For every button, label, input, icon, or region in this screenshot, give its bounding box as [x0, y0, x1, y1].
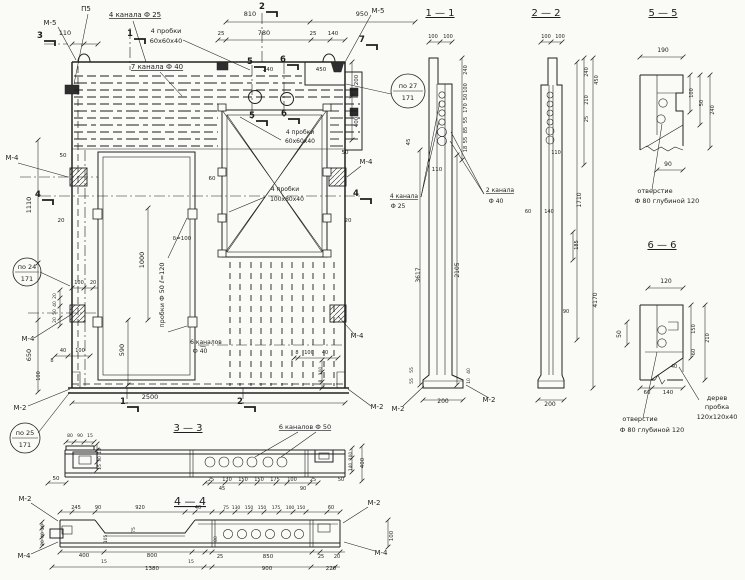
dim: 100: [389, 530, 395, 541]
dim: 100: [443, 34, 453, 40]
dim: 150: [238, 477, 248, 483]
dim: 15: [97, 464, 103, 470]
dim: 650: [25, 349, 33, 361]
svg-text:2: 2: [237, 397, 243, 407]
note-m2-s1-right: М-2: [482, 396, 495, 404]
dim: 105: [103, 535, 109, 544]
note-derev-probka-b: пробка: [705, 403, 729, 411]
channel-f50: [247, 457, 257, 467]
svg-text:171: 171: [19, 441, 31, 449]
dim: 3617: [415, 267, 422, 282]
note-4-probki-100b: 100х80х40: [270, 196, 304, 203]
dim: 210: [584, 95, 590, 105]
svg-text:4: 4: [35, 190, 41, 200]
note-2-kanala-f40-s1b: Ф 40: [489, 198, 504, 205]
svg-text:1: 1: [127, 29, 133, 39]
svg-text:4: 4: [353, 189, 359, 199]
dim: 400: [79, 553, 90, 559]
channel-f50: [281, 529, 290, 538]
dim: 90: [300, 486, 306, 492]
dim: 20: [334, 554, 340, 560]
note-4-probki-60-2: 4 пробки: [286, 129, 314, 136]
dim: 100: [428, 34, 438, 40]
dim: 20: [52, 293, 58, 299]
note-4-kanala-f25-s1: 4 канала: [390, 193, 418, 200]
note-derev-probka-c: 120х120х40: [697, 413, 738, 421]
dim: 100: [36, 371, 42, 381]
dim: 8: [50, 358, 53, 364]
svg-text:2: 2: [259, 2, 265, 12]
dim: 25: [310, 477, 316, 483]
dim: 25: [310, 31, 317, 37]
note-otverstie-6-6b: Ф 80 глубиной 120: [620, 426, 685, 434]
dim: 100: [555, 34, 565, 40]
dim: 40: [466, 368, 472, 374]
dim: 590: [118, 344, 126, 356]
dim: 100: [286, 505, 295, 511]
dim: 100: [304, 350, 314, 356]
section-cut-marker-4: 4: [353, 189, 371, 204]
note-m2-s4-tr: М-2: [367, 499, 380, 507]
note-4-kanala-f25-s1b: Ф 25: [391, 203, 406, 210]
engineering-drawing: М-5П54 канала Ф 2511081095025780251404 п…: [0, 0, 745, 580]
note-m2-bottom-right: М-2: [370, 403, 383, 411]
dim: 25: [208, 477, 214, 483]
dim: 140: [348, 463, 354, 472]
note-m4-s4-bl: М-4: [17, 552, 31, 560]
note-7-kanala-f40: 7 канала Ф 40: [131, 63, 183, 71]
dim: 50: [616, 330, 623, 338]
dim: 90: [95, 505, 101, 511]
dim: 200: [544, 401, 556, 408]
dim: 60: [691, 349, 697, 355]
dim: 140: [663, 390, 674, 396]
hole-f80: [658, 326, 666, 334]
detail-6-6-view: [640, 305, 683, 384]
dim: 75: [131, 527, 137, 533]
channel-f50: [219, 457, 229, 467]
dim: 40: [671, 364, 677, 370]
dim: 30: [97, 456, 103, 462]
section-cut-marker-1: 1: [120, 397, 138, 412]
channel-f50: [277, 457, 287, 467]
window-opening: [218, 104, 331, 257]
dim: 50: [342, 150, 349, 156]
dim: 130: [232, 505, 241, 511]
note-2-kanala-f40-s1: 2 канала: [486, 187, 514, 194]
dim: 8: [318, 379, 324, 382]
section-cut-marker-7: 7: [359, 35, 377, 50]
dim: 90: [563, 309, 569, 315]
dim: 20: [58, 218, 65, 224]
dim: 100: [74, 280, 84, 286]
dim: 780: [258, 29, 270, 37]
dim: 150: [691, 324, 697, 334]
dim: 450: [594, 75, 600, 85]
dim: 90: [77, 433, 83, 439]
note-4-probki-60-2b: 60х60х40: [285, 138, 315, 145]
note-derev-probka: дерев: [707, 394, 728, 402]
channel-f50: [265, 529, 274, 538]
section-title-6-6: 6 — 6: [647, 240, 676, 251]
section-cut-marker-2: 2: [237, 397, 255, 412]
note-m2-s4-tl: М-2: [18, 495, 31, 503]
dim: 150: [258, 505, 267, 511]
note-probki-f50: пробки Ф 50 ℓ=120: [158, 262, 166, 327]
dim: 245: [71, 505, 81, 511]
svg-text:3: 3: [37, 31, 43, 41]
dim: 50: [463, 94, 469, 100]
svg-text:1: 1: [120, 397, 126, 407]
dim: 400: [360, 457, 366, 468]
dim: 60: [328, 505, 334, 511]
dim: 18: [463, 146, 469, 152]
section-title-5-5: 5 — 5: [648, 8, 677, 19]
embed-plate-m5-left: [217, 62, 228, 70]
embed-plate-m5-right: [331, 62, 344, 72]
dim: 240: [710, 105, 716, 115]
dim: 1000: [138, 252, 146, 269]
dim: 50: [53, 476, 60, 482]
note-m2-s1-left: М-2: [391, 405, 404, 413]
note-m4-left-1: М-4: [5, 154, 19, 162]
note-m4-right-2: М-4: [350, 332, 364, 340]
dim: 40: [40, 532, 46, 538]
note-delta-100: δ=100: [173, 236, 192, 242]
dim: 100: [463, 83, 469, 93]
dim: 25: [584, 116, 590, 122]
svg-text:5: 5: [247, 57, 253, 67]
hole-f80: [658, 339, 666, 347]
note-6-kanalov-f50: 6 каналов Ф 50: [279, 423, 331, 431]
dim: 20: [40, 540, 46, 546]
svg-text:по 27: по 27: [399, 82, 418, 90]
svg-text:6: 6: [281, 109, 287, 119]
dim: 20: [52, 317, 58, 323]
detail-5-5-view: [640, 75, 683, 151]
channel-f50: [205, 457, 215, 467]
dim: 850: [263, 554, 274, 560]
dim: 2500: [142, 393, 159, 401]
ref-balloon-top: по 27171: [391, 74, 425, 108]
dim: 55: [409, 378, 415, 384]
svg-text:171: 171: [21, 275, 33, 283]
dim: 170: [463, 103, 469, 113]
dim: 450: [316, 67, 327, 73]
section-3-3-view: [65, 446, 345, 477]
dim: 1380: [145, 566, 159, 572]
dim: 140: [544, 209, 554, 215]
dim: 55: [463, 137, 469, 143]
dim: 55: [409, 367, 415, 373]
embed-plate-m4-right-1: [329, 168, 346, 186]
dim: 920: [135, 505, 145, 511]
dim: 900: [262, 566, 273, 572]
dim: 25: [318, 554, 324, 560]
dim: 85: [463, 127, 469, 133]
dim: 50: [52, 309, 58, 315]
note-otverstie-6-6: отверстие: [622, 415, 657, 423]
note-otverstie-5-5: отверстие: [637, 187, 672, 195]
dim: 25: [218, 31, 225, 37]
hole-f80: [657, 115, 665, 123]
dim: 100: [75, 348, 85, 354]
dim: 110: [59, 29, 71, 37]
dim: 1710: [576, 192, 583, 207]
svg-text:5: 5: [249, 111, 255, 121]
ref-balloon-left: по 24171: [13, 258, 41, 286]
dim: 240: [584, 67, 590, 77]
dim: 800: [147, 553, 158, 559]
dim: 50: [338, 477, 344, 483]
section-title-2-2: 2 — 2: [531, 8, 560, 19]
dim: 100: [348, 452, 354, 461]
channel-f50: [294, 529, 303, 538]
dim: 60: [644, 390, 651, 396]
note-4-probki-60-1: 4 пробки: [151, 27, 182, 35]
note-p5: П5: [81, 5, 91, 13]
dim: 110: [432, 167, 443, 173]
section-title-3-3: 3 — 3: [173, 423, 202, 434]
svg-text:7: 7: [359, 35, 365, 45]
dim: 200: [437, 398, 449, 405]
dim: 80: [67, 433, 73, 439]
dim: 20: [40, 524, 46, 530]
dim: 1110: [25, 197, 33, 214]
dim: 190: [657, 47, 669, 54]
channel-hole: [281, 93, 294, 106]
dim: 240: [463, 65, 469, 75]
dim: 15: [188, 559, 194, 565]
dim: 60: [525, 209, 531, 215]
note-otverstie-5-5b: Ф 80 глубиной 120: [635, 197, 700, 205]
dim: 50: [60, 153, 67, 159]
note-6-kanalov-f40b: Ф 40: [193, 348, 208, 355]
dim: 40: [195, 505, 201, 511]
text-labels: М-5П54 канала Ф 2511081095025780251404 п…: [5, 2, 737, 572]
dim: 2105: [454, 262, 461, 277]
dim: 100: [318, 367, 324, 376]
channel-f50: [233, 457, 243, 467]
dim: 400: [354, 116, 360, 127]
section-2-2-view: [538, 58, 564, 388]
drawing-sheet: М-5П54 канала Ф 2511081095025780251404 п…: [0, 0, 745, 580]
dim: 175: [270, 477, 280, 483]
dim: 810: [244, 10, 256, 18]
dim: 50: [699, 100, 705, 106]
dim: 100: [541, 34, 551, 40]
dim: 90: [664, 161, 672, 168]
embed-plate-m4-left-2: [70, 305, 85, 322]
svg-text:по 25: по 25: [16, 429, 35, 437]
dim: 220: [326, 566, 337, 572]
dim: 175: [272, 505, 281, 511]
dim: 100: [689, 88, 695, 98]
dim: 130: [222, 477, 232, 483]
dim: 8: [295, 350, 298, 356]
note-m4-s4-br: М-4: [374, 549, 388, 557]
dim: 110: [551, 150, 561, 156]
dim: 150: [297, 505, 306, 511]
dim: 100: [287, 477, 297, 483]
dim: 200: [354, 74, 360, 85]
lifting-loop-icon: [78, 54, 335, 62]
dim: 4170: [592, 292, 599, 307]
embed-plate-m4-right-2: [330, 305, 346, 322]
section-4-4-view: [50, 520, 340, 547]
dim: 45: [406, 138, 412, 145]
dim: 150: [254, 477, 264, 483]
dim: 15: [101, 559, 107, 565]
dim: 210: [705, 333, 711, 343]
hole-f80: [659, 99, 667, 107]
dim: 25: [217, 554, 223, 560]
section-title-4-4: 4 — 4: [174, 495, 206, 508]
dim: 45: [219, 486, 225, 492]
svg-text:по 24: по 24: [18, 263, 37, 271]
channel-f50: [223, 529, 232, 538]
note-4-probki-60-1b: 60х60х40: [150, 37, 183, 45]
note-m4-left-2: М-4: [21, 335, 35, 343]
dimension-lines: [36, 20, 713, 570]
section-title-1-1: 1 — 1: [425, 8, 454, 19]
dim: 10: [466, 378, 472, 384]
dim: 55: [463, 117, 469, 123]
channel-f50: [263, 457, 273, 467]
embed-plate-p5: [65, 85, 79, 94]
note-m4-right-1: М-4: [359, 158, 373, 166]
note-m5-top-right: М-5: [371, 7, 384, 15]
note-4-kanala-f25: 4 канала Ф 25: [109, 11, 161, 19]
dim: 20: [345, 218, 352, 224]
channel-f50: [237, 529, 246, 538]
note-4-probki-100: 4 пробки: [271, 186, 299, 193]
dim: 75: [223, 505, 229, 511]
svg-text:171: 171: [402, 94, 414, 102]
dim: 15: [97, 448, 103, 454]
dim: 15: [87, 433, 93, 439]
note-m5-top-left: М-5: [43, 19, 56, 27]
dim: 140: [328, 31, 339, 37]
dim: 185: [574, 240, 580, 250]
section-cut-marker-6: 6: [281, 109, 299, 124]
channel-f50: [251, 529, 260, 538]
dim: 40: [322, 350, 328, 356]
dim: 120: [660, 278, 672, 285]
svg-text:6: 6: [280, 55, 286, 65]
dim: 950: [356, 10, 368, 18]
note-m2-bottom-left: М-2: [13, 404, 26, 412]
dim: 40: [52, 301, 58, 307]
note-6-kanalov-f40: 6 каналов: [190, 339, 222, 346]
dim: 80: [213, 536, 219, 542]
ref-balloon-bottom-left: по 25171: [10, 423, 40, 453]
dim: 20: [90, 280, 96, 286]
dim: 150: [245, 505, 254, 511]
dim: 40: [60, 348, 66, 354]
dim: 60: [209, 176, 216, 182]
